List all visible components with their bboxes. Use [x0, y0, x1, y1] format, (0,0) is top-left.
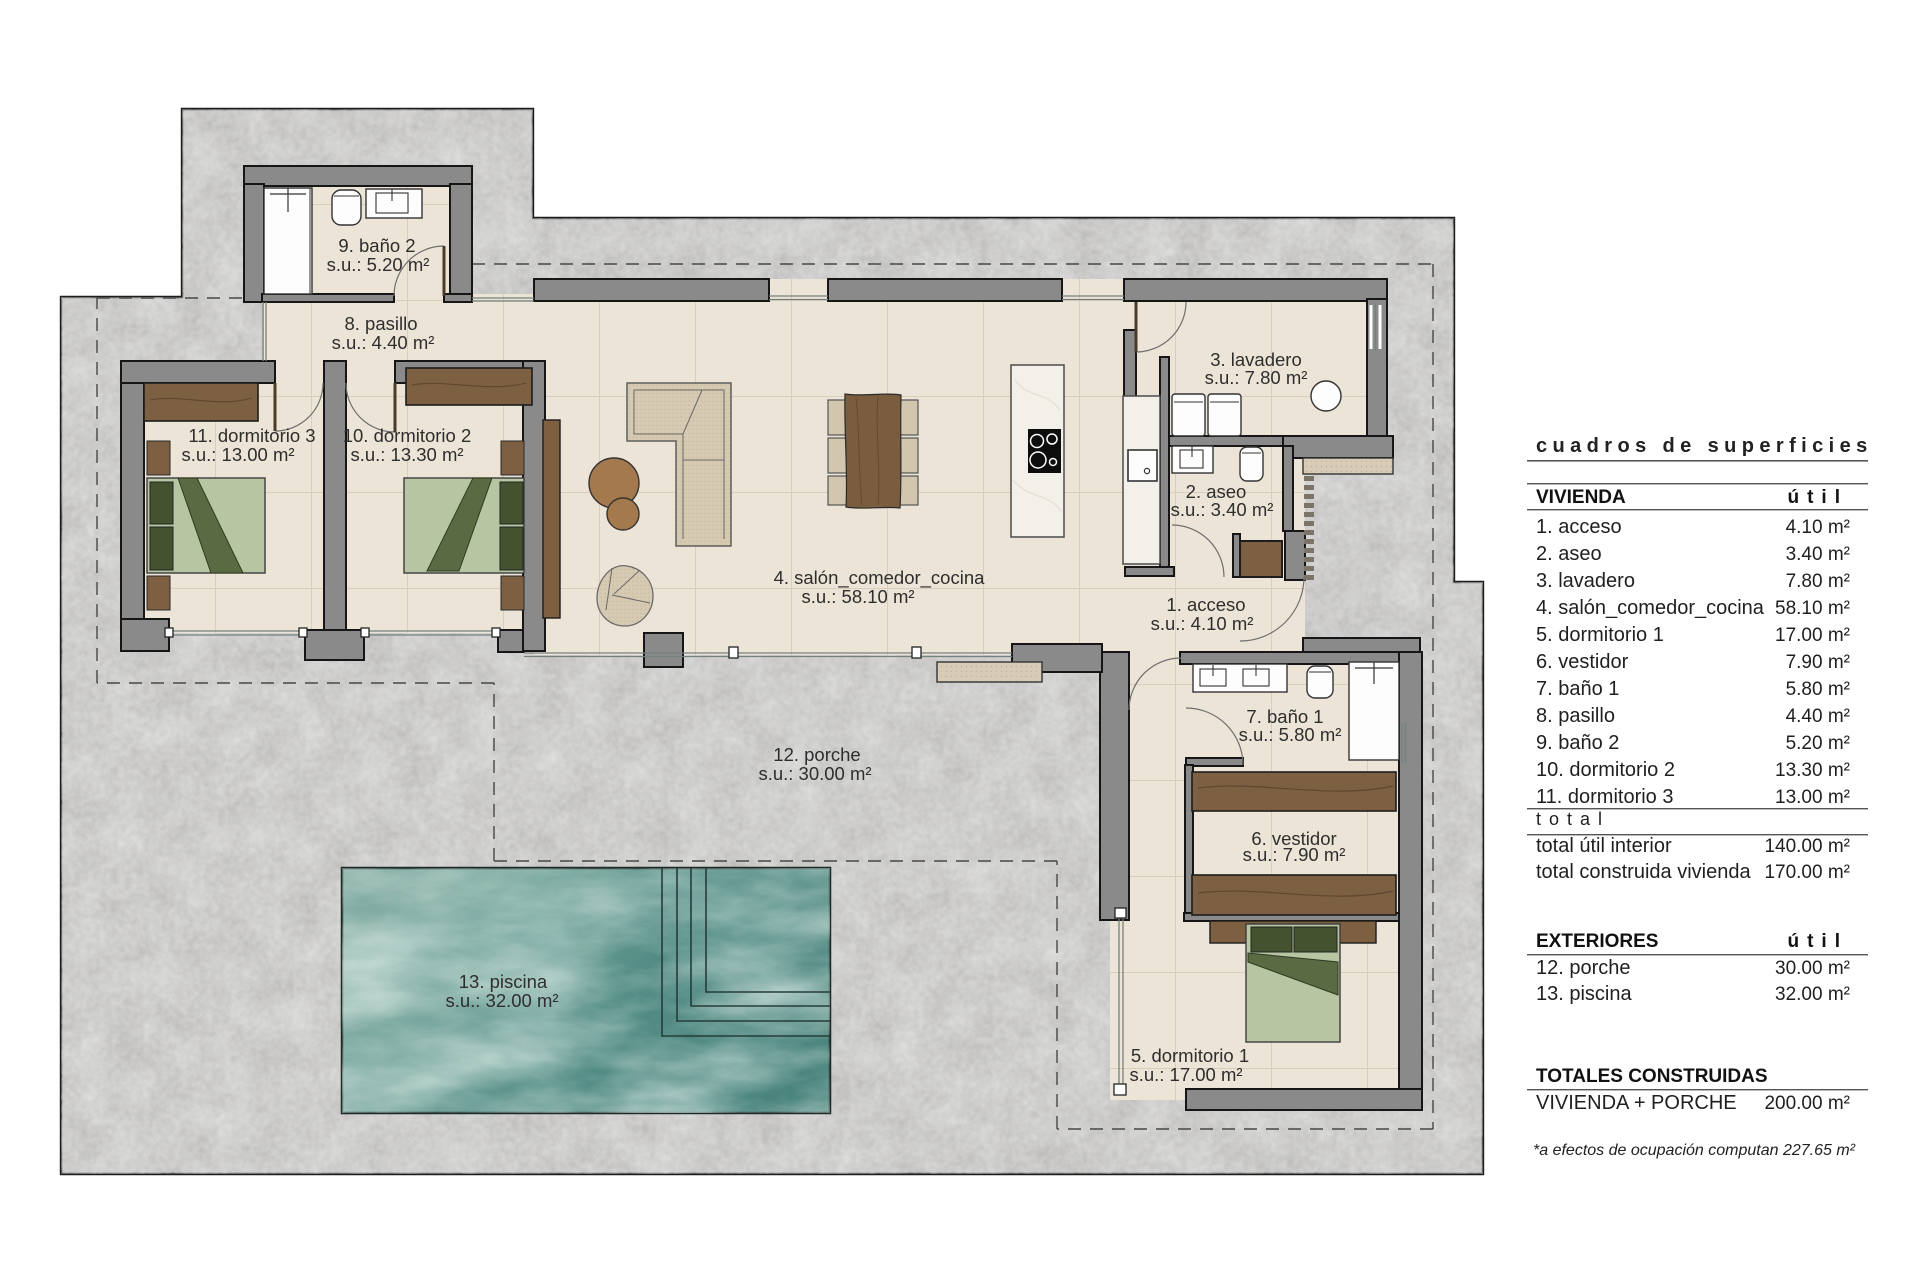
svg-text:13.30 m²: 13.30 m²: [1775, 760, 1850, 781]
svg-text:10. dormitorio 2: 10. dormitorio 2: [1536, 759, 1675, 781]
svg-text:5. dormitorio 1: 5. dormitorio 1: [1131, 1045, 1249, 1066]
svg-text:4.10 m²: 4.10 m²: [1786, 517, 1850, 538]
svg-text:s.u.: 30.00 m²: s.u.: 30.00 m²: [758, 763, 871, 784]
svg-text:t o t a l: t o t a l: [1536, 809, 1604, 829]
svg-text:EXTERIORES: EXTERIORES: [1536, 931, 1658, 952]
svg-text:200.00 m²: 200.00 m²: [1764, 1093, 1850, 1114]
svg-text:11. dormitorio 3: 11. dormitorio 3: [188, 425, 315, 446]
svg-text:13. piscina: 13. piscina: [1536, 983, 1632, 1005]
svg-text:2. aseo: 2. aseo: [1536, 543, 1602, 565]
svg-text:útil: útil: [1788, 931, 1849, 952]
svg-text:s.u.: 17.00 m²: s.u.: 17.00 m²: [1129, 1064, 1242, 1085]
svg-text:5.80 m²: 5.80 m²: [1786, 679, 1850, 700]
svg-text:12. porche: 12. porche: [1536, 957, 1631, 979]
svg-text:1. acceso: 1. acceso: [1166, 594, 1245, 615]
svg-text:s.u.: 32.00 m²: s.u.: 32.00 m²: [445, 990, 558, 1011]
svg-text:3. lavadero: 3. lavadero: [1536, 570, 1635, 592]
svg-text:9. baño 2: 9. baño 2: [338, 235, 415, 256]
svg-text:140.00 m²: 140.00 m²: [1764, 836, 1850, 857]
svg-text:17.00 m²: 17.00 m²: [1775, 625, 1850, 646]
svg-text:11. dormitorio 3: 11. dormitorio 3: [1536, 786, 1673, 808]
svg-text:7.90 m²: 7.90 m²: [1786, 652, 1850, 673]
svg-text:8. pasillo: 8. pasillo: [344, 313, 417, 334]
svg-text:9. baño 2: 9. baño 2: [1536, 732, 1619, 754]
svg-text:13.00 m²: 13.00 m²: [1775, 787, 1850, 808]
svg-text:s.u.: 13.30 m²: s.u.: 13.30 m²: [350, 444, 463, 465]
svg-text:4. salón_comedor_cocina: 4. salón_comedor_cocina: [1536, 597, 1765, 619]
svg-text:s.u.: 7.90 m²: s.u.: 7.90 m²: [1243, 844, 1346, 865]
svg-text:170.00 m²: 170.00 m²: [1764, 862, 1850, 883]
svg-text:s.u.: 7.80 m²: s.u.: 7.80 m²: [1205, 367, 1308, 388]
svg-text:32.00 m²: 32.00 m²: [1775, 984, 1850, 1005]
svg-text:1. acceso: 1. acceso: [1536, 516, 1622, 538]
svg-text:12. porche: 12. porche: [773, 744, 860, 765]
svg-text:total construida vivienda: total construida vivienda: [1536, 861, 1751, 883]
svg-text:10. dormitorio 2: 10. dormitorio 2: [343, 425, 472, 446]
svg-text:TOTALES CONSTRUIDAS: TOTALES CONSTRUIDAS: [1536, 1066, 1768, 1087]
svg-text:s.u.: 5.80 m²: s.u.: 5.80 m²: [1239, 724, 1342, 745]
svg-text:cuadros de superficies: cuadros de superficies: [1536, 435, 1873, 457]
svg-text:s.u.: 4.40 m²: s.u.: 4.40 m²: [332, 332, 435, 353]
svg-text:8. pasillo: 8. pasillo: [1536, 705, 1615, 727]
svg-text:VIVIENDA: VIVIENDA: [1536, 487, 1626, 508]
svg-text:30.00 m²: 30.00 m²: [1775, 958, 1850, 979]
svg-text:7. baño 1: 7. baño 1: [1536, 678, 1619, 700]
svg-text:5.20 m²: 5.20 m²: [1786, 733, 1850, 754]
svg-text:s.u.: 13.00 m²: s.u.: 13.00 m²: [181, 444, 294, 465]
svg-text:s.u.: 3.40 m²: s.u.: 3.40 m²: [1171, 499, 1274, 520]
svg-text:13. piscina: 13. piscina: [459, 971, 548, 992]
svg-text:total útil interior: total útil interior: [1536, 835, 1672, 857]
svg-text:útil: útil: [1788, 487, 1849, 508]
svg-text:5. dormitorio 1: 5. dormitorio 1: [1536, 624, 1664, 646]
svg-text:s.u.: 58.10 m²: s.u.: 58.10 m²: [801, 586, 914, 607]
svg-text:s.u.: 5.20 m²: s.u.: 5.20 m²: [327, 254, 430, 275]
svg-text:3.40 m²: 3.40 m²: [1786, 544, 1850, 565]
svg-text:6. vestidor: 6. vestidor: [1536, 651, 1629, 673]
svg-text:VIVIENDA + PORCHE: VIVIENDA + PORCHE: [1536, 1092, 1737, 1114]
svg-text:4.40 m²: 4.40 m²: [1786, 706, 1850, 727]
svg-text:58.10 m²: 58.10 m²: [1775, 598, 1850, 619]
svg-text:7.80 m²: 7.80 m²: [1786, 571, 1850, 592]
svg-text:s.u.: 4.10 m²: s.u.: 4.10 m²: [1151, 613, 1254, 634]
svg-text:*a efectos de ocupación comput: *a efectos de ocupación computan 227.65 …: [1533, 1142, 1856, 1159]
